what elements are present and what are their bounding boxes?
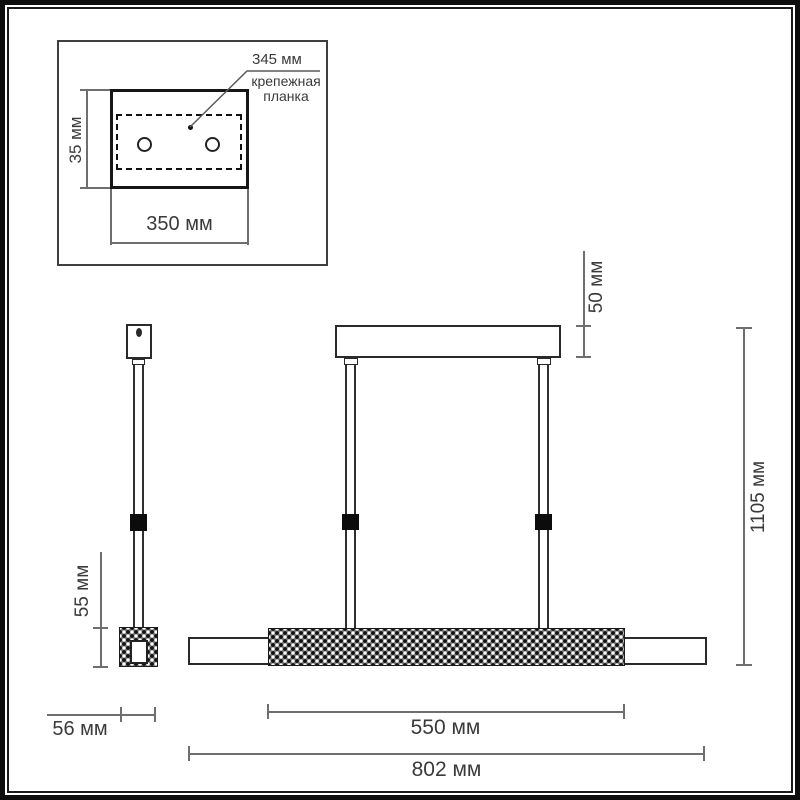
- technical-drawing: 345 мм крепежная планка 35 мм 350 мм 55 …: [0, 0, 800, 800]
- rod-connector-right: [537, 358, 551, 365]
- profile-opening-side: [130, 640, 148, 664]
- dim-55-tick-top: [93, 627, 108, 629]
- dim-1105-line: [743, 327, 745, 665]
- rod-connector-left: [344, 358, 358, 365]
- overall-length-label: 802 мм: [188, 758, 705, 782]
- body-height-label: 55 мм: [72, 551, 94, 631]
- dim-56-line: [47, 714, 155, 716]
- dim-350-line: [110, 242, 249, 244]
- dim-1105-tick-bottom: [736, 664, 752, 666]
- dim-802-line: [188, 753, 705, 755]
- suspension-rod-left: [345, 365, 356, 628]
- end-cap-left: [188, 637, 271, 665]
- dim-55-tick-bottom: [93, 666, 108, 668]
- crystal-bar: [268, 628, 625, 666]
- dim-50-tick-bottom: [576, 356, 591, 358]
- canopy-width-label: 350 мм: [110, 213, 249, 236]
- cord-adjuster-right: [535, 514, 552, 530]
- canopy-front-view: [335, 325, 561, 358]
- dim-50-tick-top: [576, 325, 591, 327]
- cord-adjuster-side: [130, 514, 147, 531]
- body-width-label: 56 мм: [43, 718, 117, 741]
- dim-35-line: [86, 89, 88, 188]
- dim-1105-tick-top: [736, 327, 752, 329]
- dim-56-tick-left: [120, 707, 122, 722]
- end-cap-right: [622, 637, 707, 665]
- dim-55-line: [100, 552, 102, 667]
- suspension-rod-right: [538, 365, 549, 628]
- plate-height-label: 35 мм: [66, 100, 86, 180]
- dim-550-line: [267, 711, 624, 713]
- dim-35-ext-top: [80, 89, 110, 91]
- dim-56-tick-right: [154, 707, 156, 722]
- mounting-plate-inset: 345 мм крепежная планка 35 мм 350 мм: [57, 40, 328, 266]
- canopy-side-hole: [136, 328, 142, 337]
- suspension-rod-side: [133, 365, 144, 627]
- dim-50-line: [583, 251, 585, 357]
- canopy-height-label: 50 мм: [586, 252, 608, 322]
- cord-adjuster-left: [342, 514, 359, 530]
- plate-name-label: крепежная планка: [247, 74, 325, 103]
- dim-35-ext-bottom: [80, 187, 110, 189]
- overall-height-label: 1105 мм: [748, 454, 770, 540]
- crystal-section-label: 550 мм: [267, 716, 624, 740]
- plate-length-label: 345 мм: [252, 51, 302, 68]
